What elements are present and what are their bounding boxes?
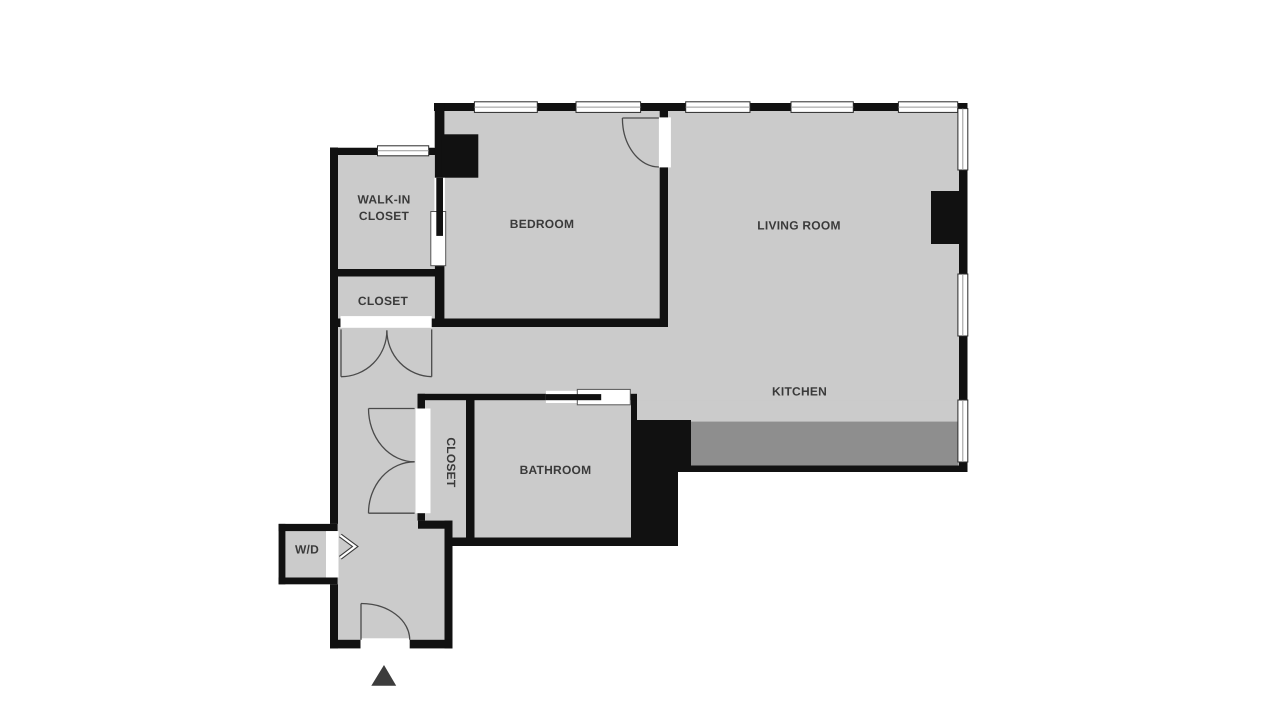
svg-text:W/D: W/D (295, 543, 319, 557)
svg-text:BATHROOM: BATHROOM (520, 463, 592, 477)
svg-text:KITCHEN: KITCHEN (772, 385, 827, 399)
svg-text:CLOSET: CLOSET (358, 294, 409, 308)
svg-text:WALK-IN: WALK-IN (357, 193, 410, 207)
svg-text:BEDROOM: BEDROOM (510, 217, 574, 231)
svg-text:CLOSET: CLOSET (359, 209, 410, 223)
svg-text:LIVING ROOM: LIVING ROOM (757, 219, 840, 233)
svg-text:CLOSET: CLOSET (444, 437, 458, 488)
